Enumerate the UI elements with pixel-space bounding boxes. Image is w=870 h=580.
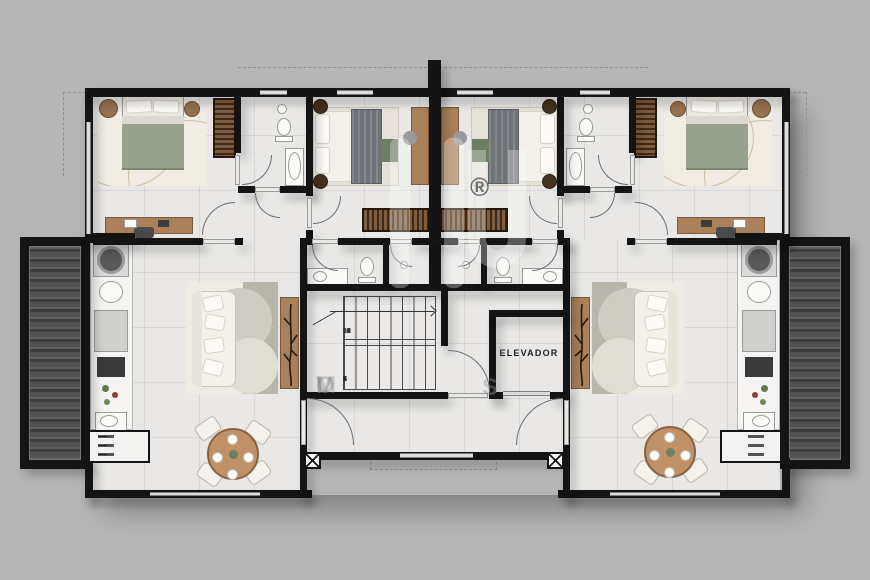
desk-chair [134, 227, 154, 238]
bedroom2-wardrobe [362, 208, 430, 232]
plate [212, 452, 223, 463]
left-console [280, 297, 299, 389]
washer-drum [97, 246, 125, 274]
window [86, 122, 91, 234]
foot-mat [472, 139, 489, 162]
plate [664, 432, 675, 443]
bath4-wall-a [557, 186, 590, 193]
nightstand [313, 99, 328, 114]
shower-head [583, 104, 593, 114]
stair-numbers-lower: 87654321 [343, 375, 436, 384]
window [610, 492, 720, 496]
kitchen-sink-round [99, 281, 123, 303]
plate [243, 452, 254, 463]
door-threshold [630, 155, 635, 185]
right-balcony-deck [789, 246, 841, 460]
plate [649, 450, 660, 461]
bedroom3-wall-a [557, 95, 564, 196]
hall-wall-9 [627, 238, 635, 245]
bathtub-basin [288, 152, 301, 180]
bedroom4-closet-wall [629, 95, 636, 153]
desk-chair [716, 227, 736, 238]
desk-chair [403, 131, 417, 145]
party-wall-center [429, 88, 441, 284]
plate [227, 469, 238, 480]
door-threshold [235, 155, 240, 185]
hall-wall-4 [338, 238, 390, 245]
door-threshold [532, 239, 558, 244]
hall-wall-8 [558, 238, 570, 245]
left-balcony-deck [29, 246, 81, 460]
nightstand [542, 174, 557, 189]
door-threshold [307, 198, 312, 228]
laptop [733, 219, 746, 228]
hall-wall-7 [480, 238, 532, 245]
hall-wall-5 [412, 238, 441, 245]
bed-fold [686, 116, 748, 124]
toilet [277, 118, 291, 136]
window [400, 453, 473, 458]
nightstand [184, 101, 200, 117]
door-threshold [458, 239, 480, 244]
bath1-wall-a [238, 186, 255, 193]
window [580, 90, 610, 95]
bath4-wall-b [615, 186, 632, 193]
window [457, 90, 493, 95]
dashed-roof-line-top [238, 67, 648, 68]
core-top-wall [303, 284, 568, 291]
bedroom1-closet-wall [234, 95, 241, 153]
stair-right-wall [441, 291, 448, 346]
toilet-tank [358, 277, 376, 283]
bedroom3-blanket [488, 109, 519, 184]
pillow [718, 99, 745, 113]
food-item [102, 385, 109, 392]
hall-wall-6 [441, 238, 458, 245]
appliance-stack [88, 430, 150, 463]
plate [680, 450, 691, 461]
toilet-tank [577, 136, 595, 142]
fridge [94, 310, 128, 352]
bedroom3-wardrobe [440, 208, 508, 232]
bedroom3-desk [441, 107, 459, 185]
cooktop [745, 357, 773, 377]
pillow [540, 147, 555, 174]
stair-bottom-wall [300, 392, 448, 399]
door-threshold [590, 187, 615, 192]
bedroom4-wardrobe [634, 98, 657, 158]
pillow [691, 99, 718, 114]
bedroom2-desk [411, 107, 429, 185]
sofa-backrest [192, 291, 202, 387]
appliance-stack [720, 430, 782, 463]
dashed-line-left-h [63, 92, 86, 93]
hall-wall-3 [300, 238, 312, 245]
plate [227, 434, 238, 445]
bedroom4-blanket [686, 124, 748, 170]
right-unit-core-wall [563, 238, 570, 498]
fridge [742, 310, 776, 352]
nightstand [313, 174, 328, 189]
elevator-door [503, 391, 550, 396]
toilet-tank [275, 136, 293, 142]
toilet-tank [494, 277, 512, 283]
food-item [761, 385, 768, 392]
door-threshold [312, 239, 338, 244]
hall-wall-10 [667, 238, 777, 245]
hall-wall-2 [235, 238, 243, 245]
door-threshold [564, 400, 569, 445]
pillow [153, 99, 180, 113]
elevator-wall-top [489, 310, 568, 317]
bedroom1-wardrobe [213, 98, 236, 158]
kitchen-sink-round [747, 281, 771, 303]
sink-bowl [100, 415, 118, 427]
laptop [124, 219, 137, 228]
table-centerpiece [666, 448, 675, 457]
elevator-wall-left [489, 310, 496, 398]
bathtub-basin [569, 152, 582, 180]
bathrow-divider-right [481, 245, 487, 284]
window [150, 492, 260, 496]
bedroom1-blanket [122, 124, 184, 170]
food-item [112, 392, 118, 398]
desk-object [701, 220, 712, 227]
desk-object [158, 220, 169, 227]
sink-bowl [752, 415, 770, 427]
toilet [360, 257, 374, 276]
sofa-pillow [203, 337, 225, 355]
washer-drum [745, 246, 773, 274]
bed-fold [122, 116, 184, 124]
dashed-line-right [806, 92, 807, 176]
door-threshold [301, 400, 306, 445]
sofa-pillow [204, 313, 226, 331]
shower-head [277, 104, 287, 114]
door-threshold [558, 198, 563, 228]
desk-chair [453, 131, 467, 145]
pillow [540, 114, 555, 144]
window [260, 90, 287, 95]
sink-bowl [543, 271, 557, 282]
toilet [496, 257, 510, 276]
stair-rail-line [343, 345, 436, 346]
bedroom2-wall-a [306, 95, 313, 196]
pillow [315, 147, 330, 174]
cooktop [97, 357, 125, 377]
window [337, 90, 373, 95]
stair-numbers-upper: 910111213141516 [343, 327, 436, 336]
elevator-label: ELEVADOR [496, 348, 562, 360]
hall-wall-1 [93, 238, 203, 245]
elevator-door-stub-left [489, 392, 503, 399]
door-threshold [390, 239, 412, 244]
nightstand [752, 99, 771, 118]
foot-mat [381, 139, 398, 162]
door-threshold [448, 393, 488, 398]
dashed-line-left [63, 92, 64, 176]
food-item [752, 392, 758, 398]
stair-rail-line [343, 339, 436, 340]
sofa-backrest [668, 291, 678, 387]
bathrow-divider-left [383, 245, 389, 284]
window [784, 122, 789, 234]
door-threshold [255, 187, 280, 192]
stair-direction-line [330, 311, 434, 312]
door-threshold [203, 239, 235, 244]
nightstand [670, 101, 686, 117]
plate [664, 467, 675, 478]
sofa-pillow [645, 337, 667, 355]
bath1-wall-b [280, 186, 313, 193]
food-item [760, 399, 766, 405]
toilet [579, 118, 593, 136]
food-item [104, 399, 110, 405]
right-console [571, 297, 590, 389]
floor-plan: 910111213141516 87654321 ELEVADOR [0, 0, 870, 580]
column-marker [547, 452, 564, 469]
bedroom2-blanket [351, 109, 382, 184]
nightstand [542, 99, 557, 114]
column-marker [304, 452, 321, 469]
table-centerpiece [229, 450, 238, 459]
door-threshold [635, 239, 667, 244]
nightstand [99, 99, 118, 118]
sink-bowl [313, 271, 327, 282]
pillow [126, 99, 153, 114]
pillow [315, 114, 330, 144]
